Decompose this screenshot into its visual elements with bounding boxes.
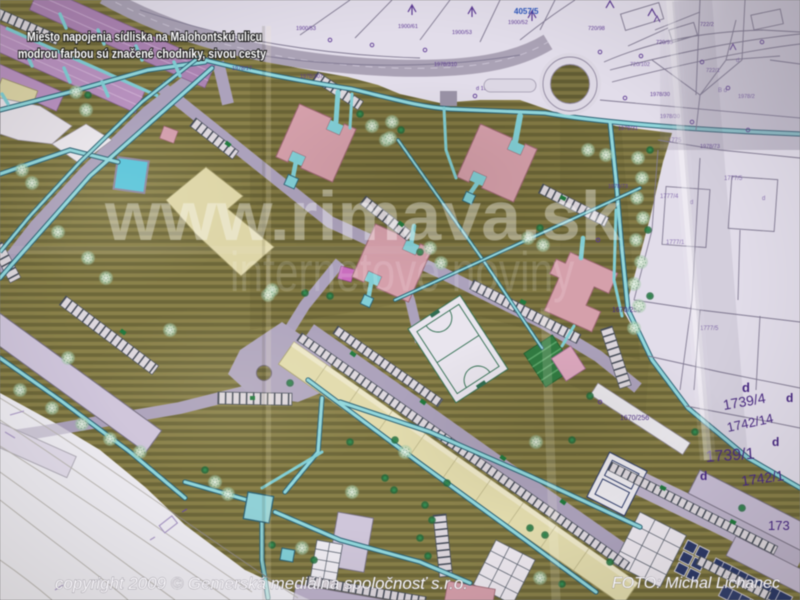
svg-text:modrou farbou sú značené chodn: modrou farbou sú značené chodníky, sivou… [18, 46, 267, 61]
svg-text:Miesto napojenia sídliska na M: Miesto napojenia sídliska na Malohontskú… [27, 29, 262, 44]
svg-text:internetové noviny: internetové noviny [230, 241, 575, 303]
svg-text:copyright 2009 © Gemerská m: copyright 2009 © Gemerská mediálna spolo… [55, 574, 468, 593]
svg-text:FOTO: Michal Lichanec: FOTO: Michal Lichanec [612, 575, 780, 592]
